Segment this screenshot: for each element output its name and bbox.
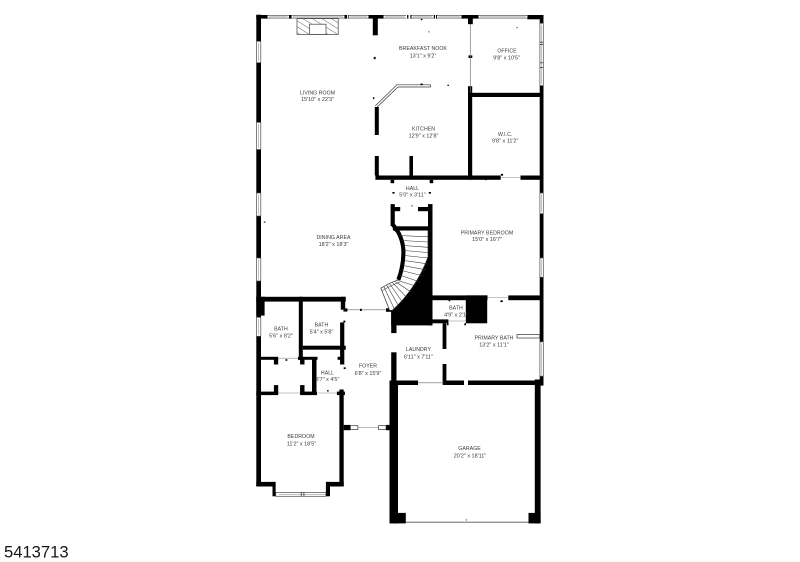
svg-text:9'8" x 11'2": 9'8" x 11'2" xyxy=(492,139,518,145)
svg-text:LAUNDRY: LAUNDRY xyxy=(406,347,432,353)
svg-text:HALL: HALL xyxy=(406,186,419,192)
svg-text:9'8" x 10'5": 9'8" x 10'5" xyxy=(493,56,520,62)
svg-text:13'2" x 11'1": 13'2" x 11'1" xyxy=(479,343,508,349)
svg-text:12'9" x 12'8": 12'9" x 12'8" xyxy=(409,134,439,140)
svg-text:5'0" x 3'11": 5'0" x 3'11" xyxy=(399,192,425,198)
svg-text:FOYER: FOYER xyxy=(359,364,377,370)
svg-text:5413713: 5413713 xyxy=(4,543,69,562)
svg-text:18'2" x 18'3": 18'2" x 18'3" xyxy=(319,242,349,248)
svg-text:BATH: BATH xyxy=(274,326,288,332)
svg-text:PRIMARY BEDROOM: PRIMARY BEDROOM xyxy=(461,230,513,236)
svg-text:BEDROOM: BEDROOM xyxy=(287,434,314,440)
svg-text:DINING AREA: DINING AREA xyxy=(317,235,351,241)
svg-text:5'6" x 8'2": 5'6" x 8'2" xyxy=(269,334,293,340)
svg-text:5'4" x 5'8": 5'4" x 5'8" xyxy=(310,329,334,335)
svg-text:LIVING ROOM: LIVING ROOM xyxy=(300,91,335,97)
svg-text:4'9" x 2'1": 4'9" x 2'1" xyxy=(444,312,468,318)
svg-text:PRIMARY BATH: PRIMARY BATH xyxy=(475,335,514,341)
svg-text:15'0" x 16'7": 15'0" x 16'7" xyxy=(472,237,502,243)
svg-text:OFFICE: OFFICE xyxy=(497,48,517,54)
svg-text:20'2" x 18'11": 20'2" x 18'11" xyxy=(454,454,487,460)
svg-text:15'10" x 22'3": 15'10" x 22'3" xyxy=(301,97,334,103)
svg-text:HALL: HALL xyxy=(321,370,334,376)
svg-text:13'1" x 9'2": 13'1" x 9'2" xyxy=(410,53,437,59)
svg-text:6'8" x 15'9": 6'8" x 15'9" xyxy=(355,371,382,377)
svg-text:11'2" x 18'5": 11'2" x 18'5" xyxy=(287,441,316,447)
svg-text:KITCHEN: KITCHEN xyxy=(412,126,435,132)
svg-text:GARAGE: GARAGE xyxy=(458,446,481,452)
svg-text:BATH: BATH xyxy=(449,305,463,311)
svg-text:3'7" x 4'5": 3'7" x 4'5" xyxy=(316,377,340,383)
svg-text:6'11" x 7'11": 6'11" x 7'11" xyxy=(404,354,433,360)
svg-text:W.I.C.: W.I.C. xyxy=(498,132,512,138)
svg-text:BATH: BATH xyxy=(315,323,329,329)
svg-text:BREAKFAST NOOK: BREAKFAST NOOK xyxy=(399,46,447,52)
